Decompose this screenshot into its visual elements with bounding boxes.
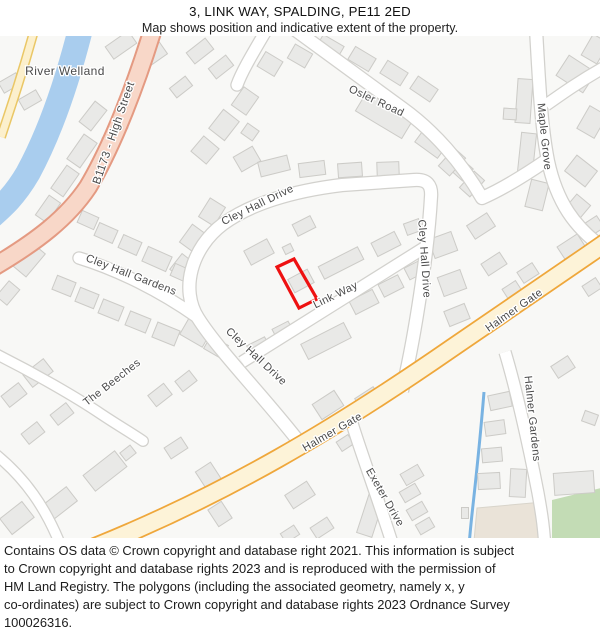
building (258, 155, 291, 177)
street-label: The Beeches (81, 357, 143, 409)
building (292, 216, 316, 237)
building (467, 213, 496, 239)
building (285, 481, 316, 509)
copyright-line: HM Land Registry. The polygons (includin… (0, 578, 600, 596)
page-subtitle: Map shows position and indicative extent… (0, 19, 600, 35)
building (481, 252, 507, 276)
building (553, 471, 594, 496)
building (83, 451, 127, 491)
building (175, 370, 197, 391)
building (371, 231, 401, 256)
building (94, 223, 118, 244)
building (98, 299, 124, 321)
building (120, 445, 136, 461)
building (118, 235, 142, 256)
copyright-line: co-ordinates) are subject to Crown copyr… (0, 596, 600, 614)
building (186, 38, 214, 64)
copyright-notice: Contains OS data © Crown copyright and d… (0, 538, 600, 629)
building (565, 155, 598, 187)
building (1, 383, 27, 408)
building (125, 311, 151, 333)
building (244, 239, 274, 265)
building (191, 136, 219, 164)
building (52, 275, 76, 296)
building (400, 464, 424, 485)
building (509, 469, 526, 498)
building (488, 391, 513, 410)
building (164, 437, 188, 459)
building (462, 508, 469, 519)
building (582, 410, 599, 425)
building (77, 210, 99, 229)
building (318, 247, 364, 279)
page-title: 3, LINK WAY, SPALDING, PE11 2ED (0, 0, 600, 19)
building (79, 101, 107, 131)
buildings-layer (0, 36, 600, 538)
street-label: River Welland (25, 64, 105, 78)
building (0, 502, 34, 535)
building (338, 162, 363, 178)
building (410, 76, 438, 102)
building (280, 525, 299, 538)
building (105, 36, 137, 59)
building (415, 517, 434, 535)
building (581, 36, 600, 64)
building (406, 501, 428, 520)
building (380, 60, 408, 85)
copyright-line: Contains OS data © Crown copyright and d… (0, 542, 600, 560)
building (241, 123, 259, 141)
building (399, 483, 421, 502)
map-canvas: River WellandB1173 - High StreetOsler Ro… (0, 36, 600, 538)
building (481, 447, 502, 463)
building (18, 90, 41, 110)
building (50, 403, 74, 426)
building (525, 179, 549, 211)
building (310, 517, 334, 538)
building (282, 243, 294, 254)
building (148, 383, 172, 406)
building (551, 356, 575, 379)
building (208, 55, 233, 79)
building (21, 422, 45, 445)
building (233, 146, 261, 172)
building (298, 160, 326, 177)
building (478, 472, 501, 489)
map-svg: River WellandB1173 - High StreetOsler Ro… (0, 36, 600, 538)
building (437, 269, 466, 296)
building (169, 76, 192, 98)
street-label: B1173 - High Street (91, 80, 138, 186)
building (577, 106, 600, 139)
building (444, 303, 470, 326)
building (484, 420, 506, 437)
copyright-line: to Crown copyright and database rights 2… (0, 560, 600, 578)
street-label: Cley Hall Drive (220, 183, 296, 228)
copyright-line: 100026316. (0, 614, 600, 632)
building (0, 281, 20, 305)
map-header: 3, LINK WAY, SPALDING, PE11 2ED Map show… (0, 0, 600, 36)
building (142, 246, 172, 271)
building (582, 278, 600, 297)
building (257, 52, 283, 77)
building (152, 322, 180, 346)
building (503, 108, 517, 120)
building (515, 79, 533, 124)
building (75, 287, 99, 308)
building (209, 109, 240, 140)
